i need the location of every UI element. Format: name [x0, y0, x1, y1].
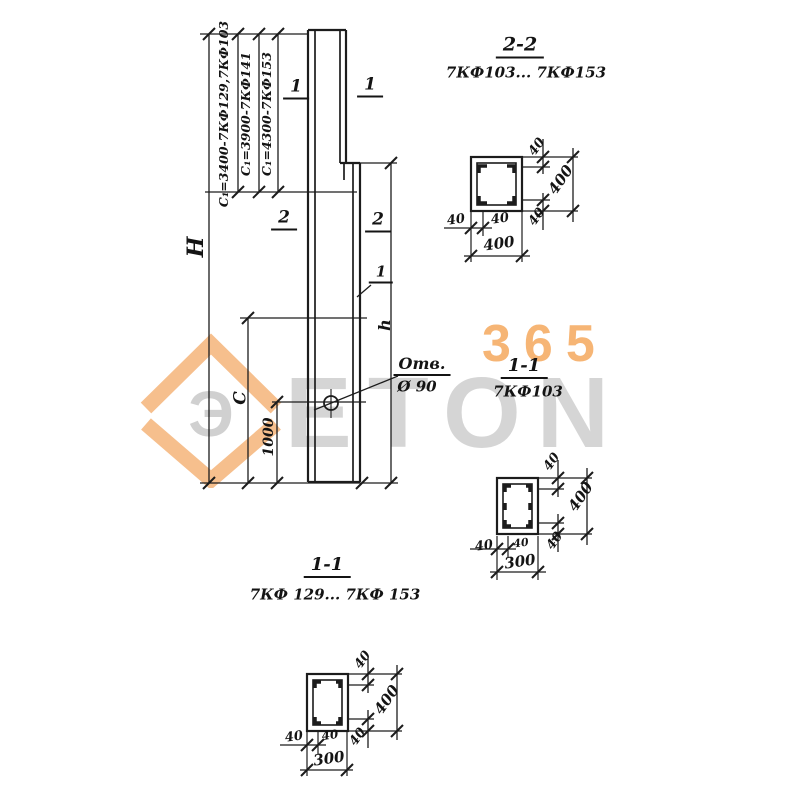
dim-label-H: H — [185, 237, 207, 258]
dim-300: 300 — [503, 552, 536, 571]
dim-40: 40 — [446, 212, 466, 227]
cut-mark-2-right: 2 — [365, 212, 391, 233]
dim-label-c1-variant-1: С₁=3400-7КФ129,7КФ103 — [218, 21, 231, 207]
rebar-corner-marks — [479, 166, 514, 203]
technical-drawing-page: Э ETON 365 — [0, 0, 800, 800]
rebar-corner-marks — [505, 486, 530, 526]
dim-40: 40 — [474, 538, 494, 553]
cut-mark-1-left: 1 — [283, 79, 309, 100]
column-elevation-outline — [308, 30, 398, 482]
section-1-1-top-subtitle: 7КФ103 — [493, 385, 563, 400]
leader-mark-1: 1 — [369, 265, 393, 284]
dim-40: 40 — [284, 729, 304, 744]
section-1-1-bottom-title: 1-1 — [304, 556, 351, 578]
hole-note-title: Отв. — [394, 356, 451, 376]
section-1-1-bottom-subtitle: 7КФ 129... 7КФ 153 — [250, 588, 421, 603]
dim-label-1000: 1000 — [262, 418, 276, 457]
section-1-1-top-title: 1-1 — [501, 357, 548, 379]
dim-label-c1-variant-2: С₁=3900-7КФ141 — [240, 52, 253, 176]
dim-label-C: С — [233, 391, 250, 405]
dim-label-c1-variant-3: С₁=4300-7КФ153 — [261, 52, 274, 176]
hole-leader-line — [314, 376, 398, 410]
linework-svg — [0, 0, 800, 800]
dim-300: 300 — [312, 749, 345, 768]
dim-40: 40 — [490, 211, 510, 226]
dim-40: 40 — [513, 536, 530, 549]
section-2-2-title: 2-2 — [496, 36, 544, 59]
section-2-2-subtitle: 7КФ103... 7КФ153 — [446, 66, 606, 81]
cut-mark-2-left: 2 — [271, 210, 297, 231]
dim-40: 40 — [321, 728, 339, 742]
hole-note-diameter: Ø 90 — [397, 380, 436, 395]
cut-mark-1-right: 1 — [357, 77, 383, 98]
dim-400: 400 — [482, 234, 515, 253]
dim-label-h: h — [377, 319, 393, 331]
rebar-corner-marks — [315, 682, 340, 723]
